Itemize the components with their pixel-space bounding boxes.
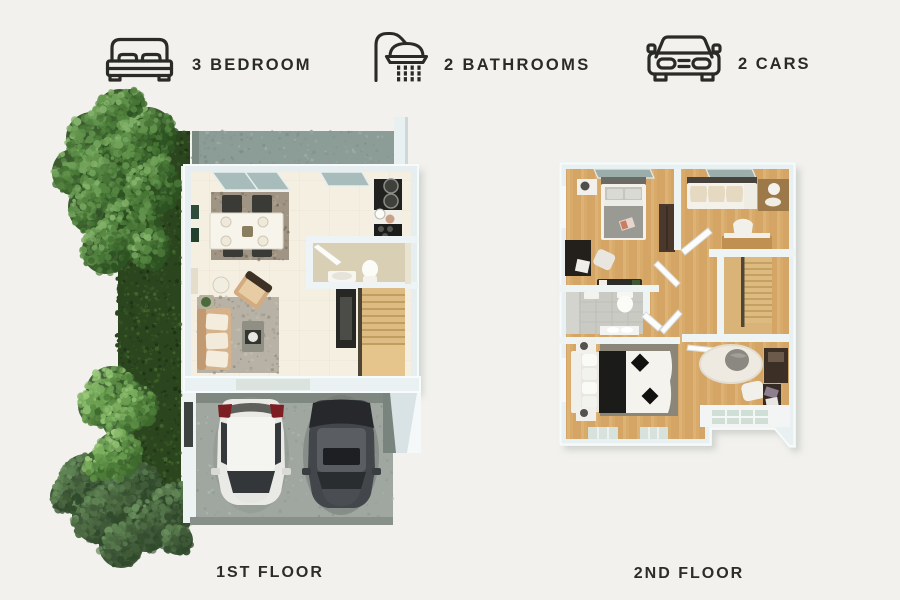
- svg-text:2 CARS: 2 CARS: [738, 55, 811, 73]
- svg-text:3 BEDROOM: 3 BEDROOM: [192, 56, 312, 74]
- svg-text:2 BATHROOMS: 2 BATHROOMS: [444, 56, 591, 74]
